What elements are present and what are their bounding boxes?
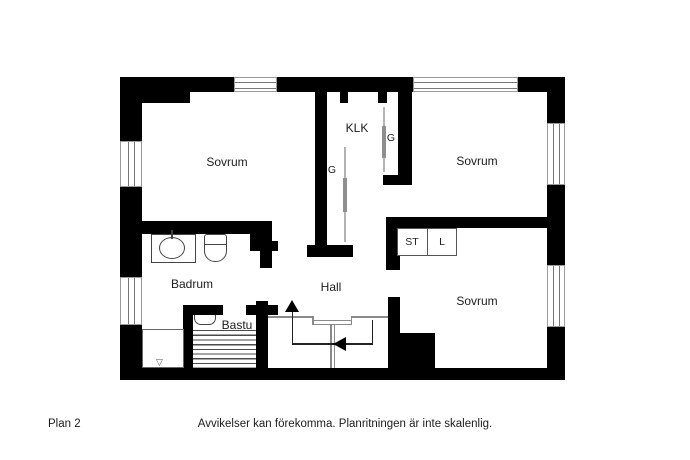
wardrobe-door-line	[343, 178, 347, 212]
plan-disclaimer: Avvikelser kan förekomma. Planritningen …	[0, 418, 690, 430]
room-label-bathroom: Badrum	[171, 277, 213, 291]
sauna-benches	[193, 330, 256, 368]
sauna-heater-icon	[194, 315, 216, 325]
floor-plan-page: ▽ Sovrum Sovrum Sovrum KLK G G ST L Badr…	[0, 0, 690, 460]
wall-segment	[120, 187, 142, 277]
stair-direction-left-arrow-icon	[333, 337, 346, 351]
wall-segment	[183, 305, 223, 315]
stair-divider-line	[330, 325, 332, 368]
window	[413, 77, 518, 92]
stair-walk-line	[372, 320, 374, 344]
room-label-walk-in-closet: KLK	[346, 121, 369, 135]
wall-segment	[547, 77, 565, 123]
wall-segment	[340, 90, 348, 103]
window	[547, 123, 565, 185]
room-label-bedroom-top-right: Sovrum	[456, 154, 497, 168]
stair-walk-line	[292, 312, 294, 345]
sink-tap-icon	[171, 230, 173, 239]
wall-segment	[547, 185, 565, 265]
wall-segment	[388, 333, 435, 368]
wall-segment	[120, 325, 142, 380]
floor-drain-icon: ▽	[156, 358, 163, 367]
stair-line	[268, 316, 312, 318]
floor-label: Plan 2	[48, 418, 81, 430]
room-label-hall: Hall	[321, 280, 342, 294]
stair-line	[312, 320, 352, 322]
wall-segment	[315, 90, 327, 245]
stair-line	[352, 316, 388, 318]
closet-label-l: L	[439, 236, 445, 248]
wall-segment	[398, 90, 412, 185]
wall-segment	[120, 368, 565, 380]
sink-bowl-icon	[159, 237, 185, 259]
wall-segment	[120, 77, 142, 141]
wall-segment	[268, 241, 278, 251]
room-label-sauna: Bastu	[222, 318, 253, 332]
closet-label-st: ST	[405, 236, 418, 248]
wall-segment	[398, 217, 547, 228]
stair-line	[312, 324, 352, 326]
window	[234, 77, 277, 92]
wall-segment	[383, 175, 412, 185]
shower-area	[142, 329, 184, 368]
toilet-icon	[204, 234, 227, 262]
wall-segment	[142, 221, 250, 234]
stair-direction-up-arrow-icon	[285, 300, 299, 312]
window	[120, 277, 142, 325]
window	[120, 141, 142, 187]
room-label-wardrobe-right: G	[387, 132, 395, 144]
room-label-bedroom-top-left: Sovrum	[206, 155, 247, 169]
room-label-wardrobe-left: G	[328, 164, 336, 176]
window	[547, 265, 565, 327]
wall-segment	[307, 245, 353, 257]
wall-segment	[547, 327, 565, 380]
wall-segment	[378, 90, 387, 103]
wall-segment	[246, 305, 278, 315]
wardrobe-door-line	[382, 126, 386, 158]
room-label-bedroom-bottom-right: Sovrum	[456, 294, 497, 308]
